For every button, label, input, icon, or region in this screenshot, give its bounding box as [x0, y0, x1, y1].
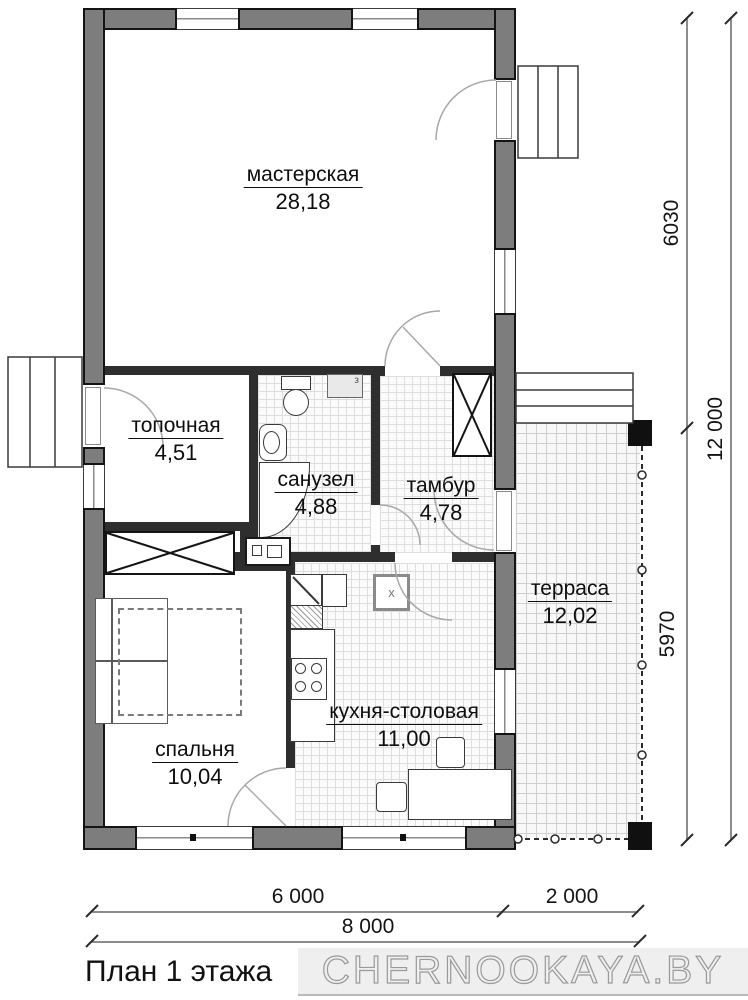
room-area: 28,18	[244, 188, 363, 215]
room-name: топочная	[128, 414, 223, 439]
room-label-bathroom: санузел 4,88	[275, 468, 358, 521]
room-name: спальня	[152, 738, 238, 763]
dimension-value: 12 000	[704, 397, 728, 461]
dimension-value: 2 000	[546, 885, 599, 909]
room-name: мастерская	[244, 163, 363, 188]
dimension-line	[92, 941, 640, 943]
room-name: терраса	[528, 577, 612, 602]
room-area: 10,04	[152, 763, 238, 790]
room-label-workshop: мастерская 28,18	[244, 163, 363, 216]
room-area: 4,51	[128, 439, 223, 466]
corner-cabinet-diagonal	[293, 577, 319, 604]
dimension-value: 8 000	[342, 915, 395, 939]
room-name: тамбур	[404, 474, 479, 499]
room-name: санузел	[275, 468, 358, 493]
watermark: CHERNOOKAYA.BY	[298, 948, 748, 996]
floor-plan: з x	[0, 0, 748, 1000]
room-area: 4,78	[404, 499, 479, 526]
terrace-steps	[516, 373, 633, 423]
room-label-vestibule: тамбур 4,78	[404, 474, 479, 527]
dimension-line	[92, 911, 638, 913]
east-steps	[518, 66, 578, 158]
room-label-bedroom: спальня 10,04	[152, 738, 238, 791]
room-area: 12,02	[528, 602, 612, 629]
terrace-railing	[514, 446, 646, 843]
dimension-value: 6 000	[272, 885, 325, 909]
room-label-boiler: топочная 4,51	[128, 414, 223, 467]
plan-linework	[0, 0, 748, 1000]
west-steps	[8, 357, 82, 467]
room-label-kitchen: кухня-столовая 11,00	[326, 700, 482, 753]
room-area: 11,00	[326, 725, 482, 752]
room-area: 4,88	[275, 493, 358, 520]
dimension-value: 5970	[656, 611, 680, 658]
dimension-line	[730, 18, 732, 840]
room-name: кухня-столовая	[326, 700, 482, 725]
dimension-value: 6030	[660, 200, 684, 247]
room-label-terrace: терраса 12,02	[528, 577, 612, 630]
plan-title: План 1 этажа	[85, 955, 272, 989]
